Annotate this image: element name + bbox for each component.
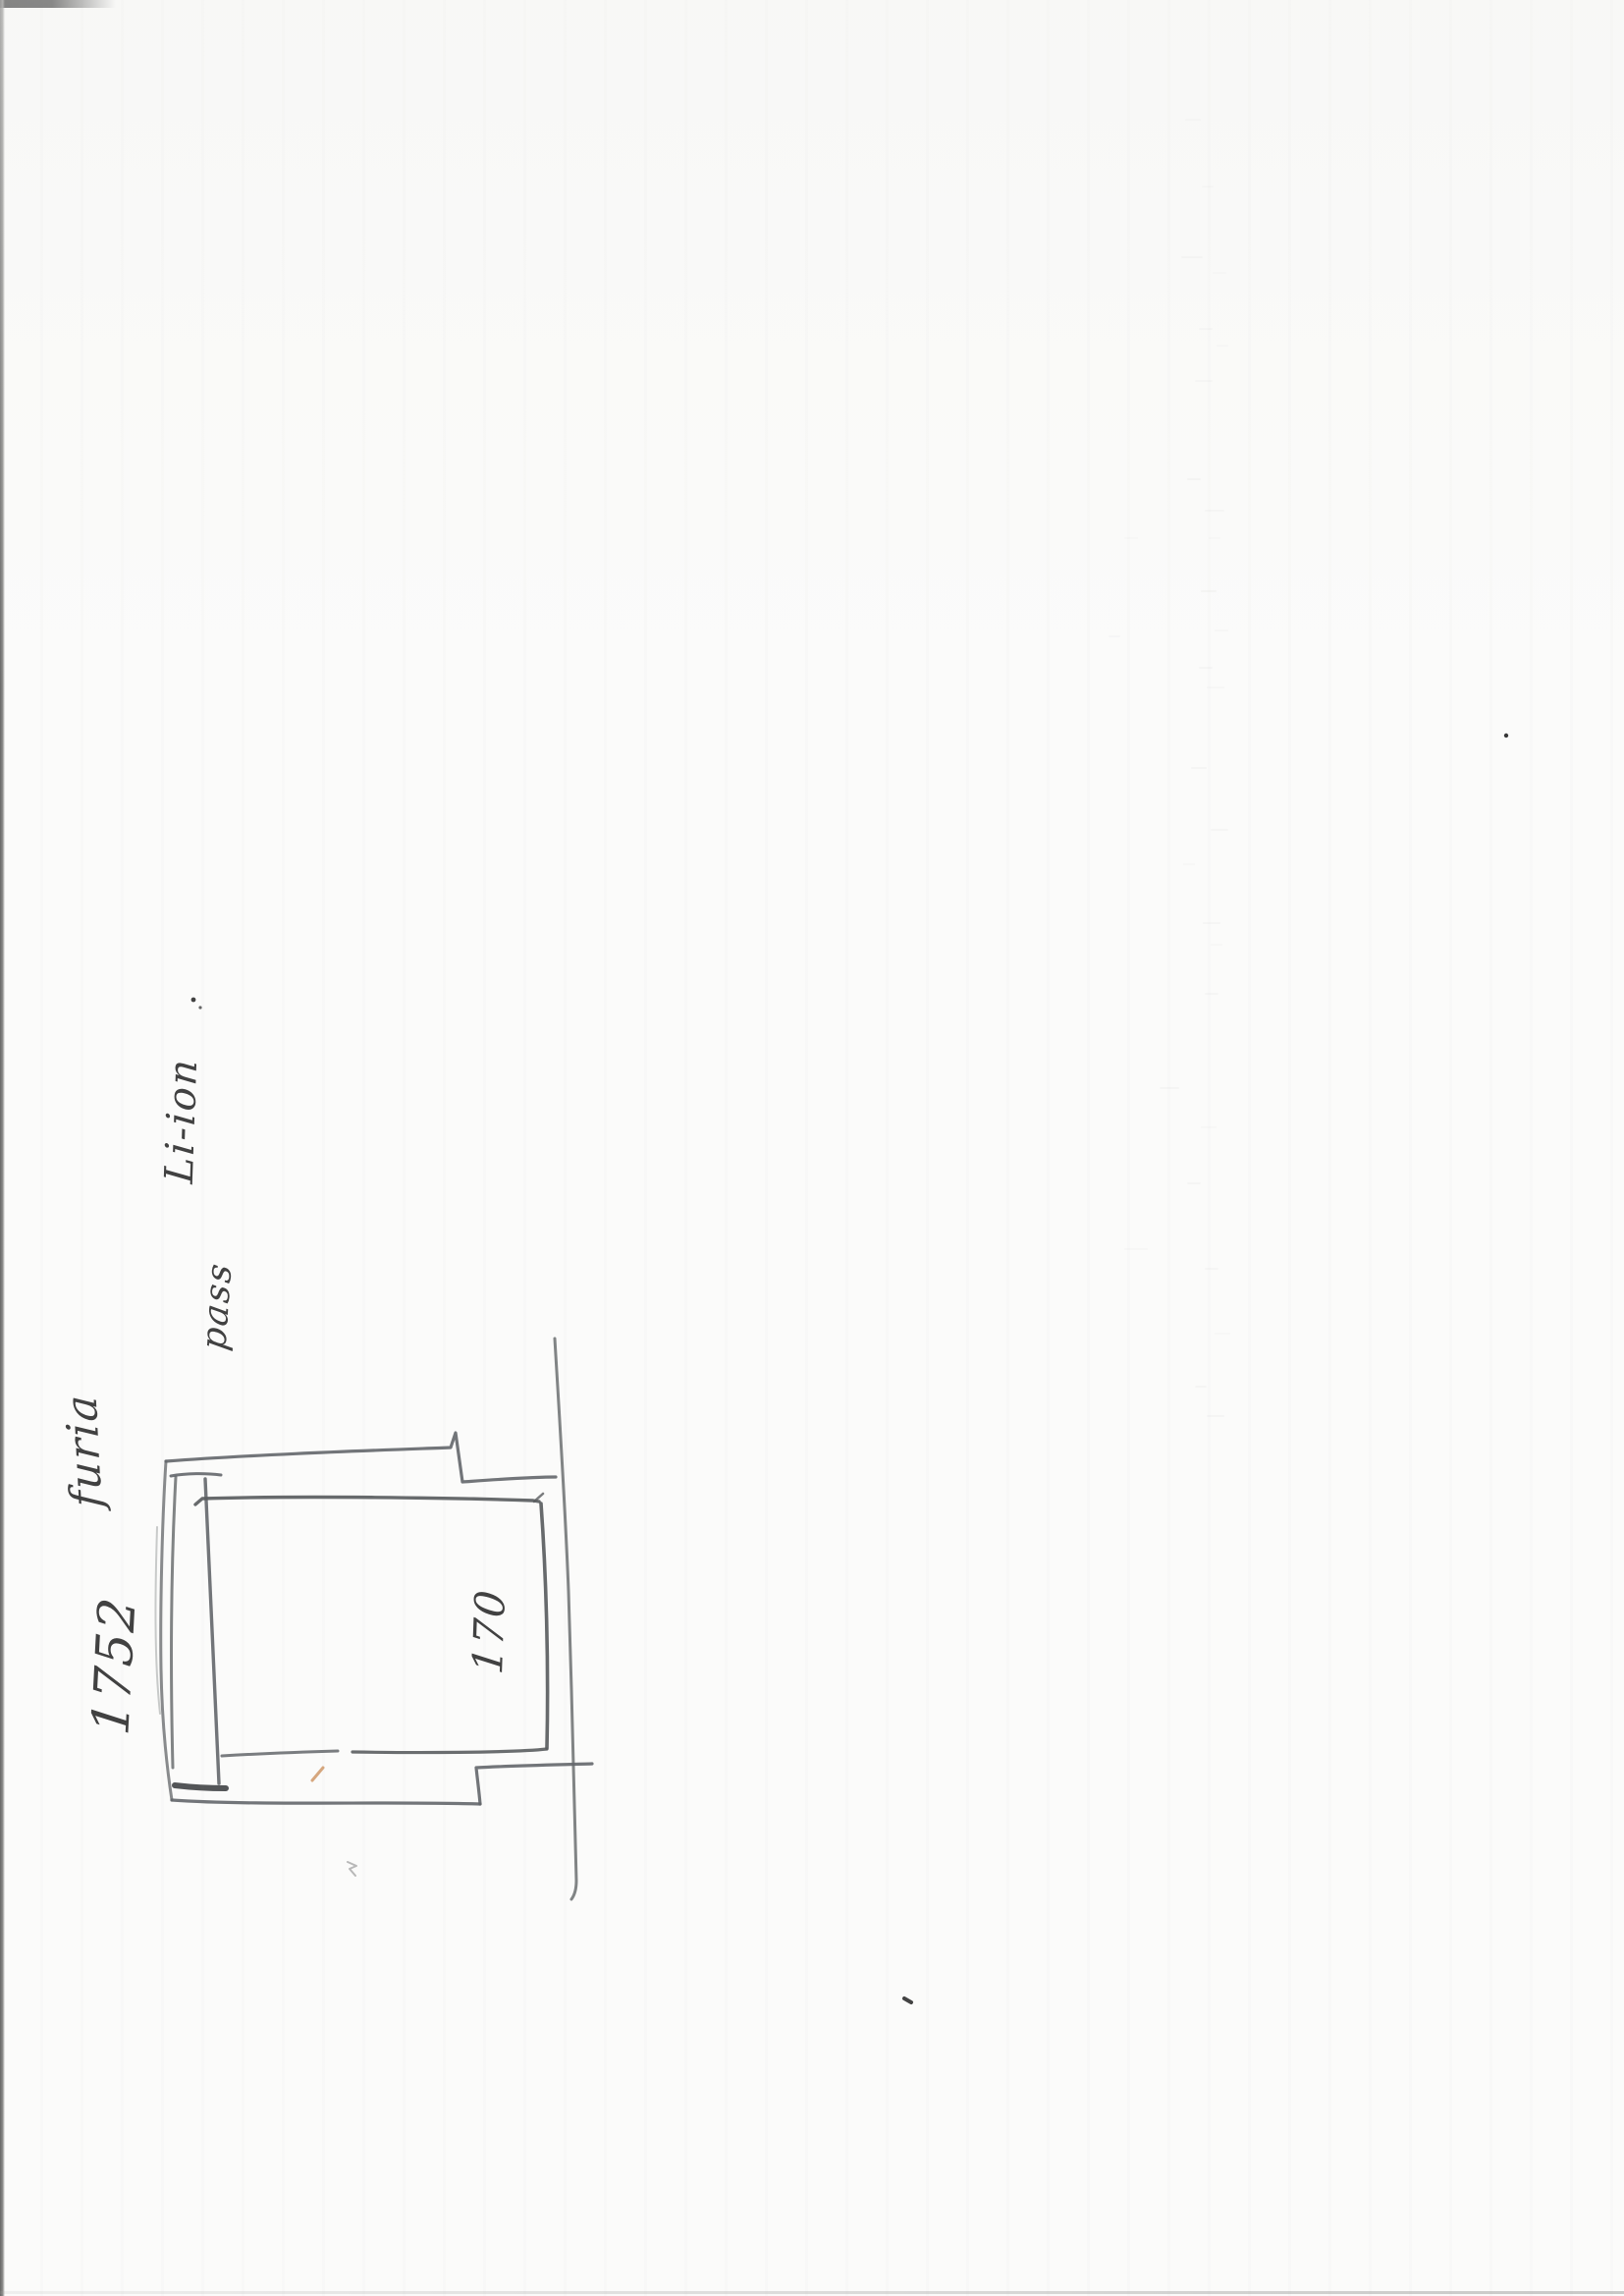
sketch-drawing (0, 0, 1624, 2296)
handwriting-dimension-1752: 1752 (81, 1593, 147, 1737)
bar-left-line (172, 1477, 176, 1768)
handwriting-word-pass: pass (194, 1259, 241, 1353)
bar-top-cap (171, 1474, 221, 1476)
scan-artifact-left-strip (0, 0, 5, 2296)
inner-rect-bottom-left (222, 1751, 338, 1756)
outer-box-top-edge (166, 1433, 556, 1482)
scanned-page: 1752 furia pass Li-ion 170 (0, 0, 1624, 2296)
orange-tick-mark (312, 1768, 323, 1780)
stray-dot-right (1504, 734, 1508, 738)
scan-artifact-bottom-line (0, 2291, 1624, 2294)
bar-bottom-cap (175, 1785, 226, 1788)
inner-rect-right-edge (541, 1503, 548, 1748)
scan-artifact-top-band (0, 0, 116, 8)
bar-right-line (205, 1479, 219, 1783)
vertical-reference-line (555, 1339, 576, 1899)
outer-box-bottom-edge (172, 1800, 480, 1804)
handwriting-word-furia: furia (56, 1393, 112, 1508)
inner-rect-bottom-right (352, 1749, 547, 1753)
inner-rect-top-edge (195, 1498, 539, 1504)
stray-squiggle-mark (348, 1862, 356, 1876)
scanner-smudge-column (1110, 120, 1229, 1416)
handwriting-dimension-170: 170 (463, 1586, 514, 1676)
ink-dot-liion-2 (198, 1006, 201, 1009)
stray-dot-bottom (904, 1998, 911, 2002)
ink-dot-liion-1 (191, 998, 196, 1003)
handwriting-word-liion: Li-ion (157, 1056, 206, 1184)
